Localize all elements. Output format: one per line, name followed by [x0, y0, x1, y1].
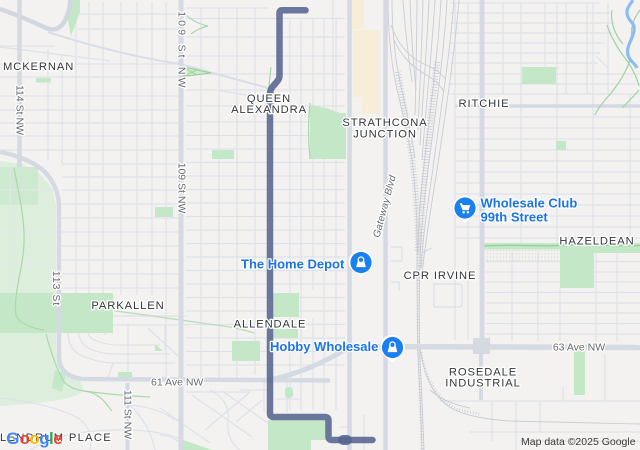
- svg-text:114 St NW: 114 St NW: [14, 85, 26, 135]
- svg-text:113 St: 113 St: [50, 271, 62, 307]
- svg-text:e: e: [53, 429, 62, 448]
- svg-text:Map data ©2025 Google: Map data ©2025 Google: [521, 436, 636, 448]
- svg-text:ALLENDALE: ALLENDALE: [234, 319, 307, 331]
- svg-text:109 St NW: 109 St NW: [176, 11, 188, 91]
- svg-text:INDUSTRIAL: INDUSTRIAL: [445, 378, 521, 390]
- svg-text:111 St NW: 111 St NW: [122, 390, 134, 439]
- svg-text:The Home Depot: The Home Depot: [241, 257, 345, 272]
- svg-text:PARKALLEN: PARKALLEN: [91, 300, 164, 312]
- svg-text:Hobby Wholesale: Hobby Wholesale: [270, 339, 378, 354]
- svg-text:JUNCTION: JUNCTION: [353, 129, 417, 141]
- svg-text:CPR IRVINE: CPR IRVINE: [404, 270, 477, 282]
- svg-text:G: G: [6, 429, 19, 448]
- svg-text:ALEXANDRA: ALEXANDRA: [231, 104, 307, 116]
- svg-text:Wholesale Club: Wholesale Club: [481, 196, 578, 211]
- svg-text:99th Street: 99th Street: [481, 210, 549, 225]
- svg-text:109 St NW: 109 St NW: [176, 163, 188, 214]
- svg-text:HAZELDEAN: HAZELDEAN: [559, 236, 634, 248]
- svg-text:63 Ave NW: 63 Ave NW: [553, 342, 605, 354]
- svg-text:RITCHIE: RITCHIE: [458, 98, 509, 110]
- svg-text:61 Ave NW: 61 Ave NW: [151, 377, 203, 389]
- svg-text:MCKERNAN: MCKERNAN: [3, 61, 74, 73]
- svg-text:STRATHCONA: STRATHCONA: [342, 117, 427, 129]
